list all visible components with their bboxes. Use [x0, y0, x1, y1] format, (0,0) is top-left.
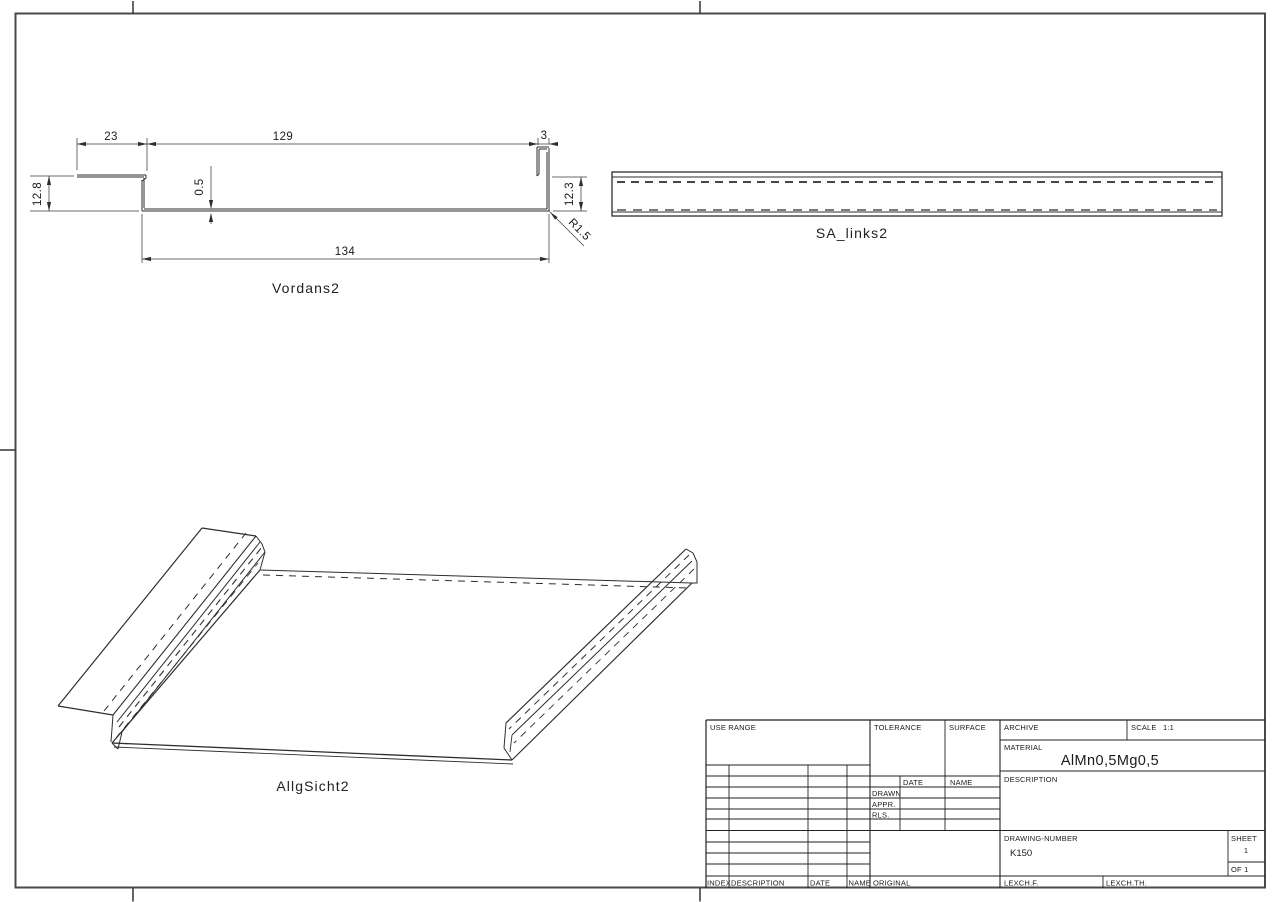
- tolerance-label: TOLERANCE: [874, 723, 922, 732]
- iso-view-label: AllgSicht2: [276, 778, 349, 794]
- front-view-label: Vordans2: [272, 280, 340, 296]
- material-value: AlMn0,5Mg0,5: [1061, 753, 1159, 769]
- side-view-geometry: [612, 172, 1222, 216]
- dim-lip-width: 3: [541, 130, 548, 142]
- dim-bend-radius: R1.5: [566, 216, 593, 243]
- name-header: NAME: [950, 778, 972, 787]
- lexch-f-label: LEXCH.F.: [1004, 879, 1039, 888]
- dim-right-height: 12.3: [564, 182, 576, 206]
- date-col-label: DATE: [810, 879, 830, 888]
- appr-label: APPR.: [872, 800, 896, 809]
- front-view-geometry: [77, 147, 550, 211]
- date-header: DATE: [903, 778, 923, 787]
- surface-label: SURFACE: [949, 723, 986, 732]
- description-col-label: DESCRIPTION: [731, 879, 784, 888]
- drawn-label: DRAWN: [872, 789, 901, 798]
- archive-label: ARCHIVE: [1004, 723, 1039, 732]
- sheet-value: 1: [1244, 846, 1248, 855]
- side-view-label: SA_links2: [816, 225, 888, 241]
- dim-top-span: 129: [273, 131, 293, 143]
- dim-flange-width: 23: [104, 131, 118, 143]
- scale-label: SCALE: [1131, 723, 1157, 732]
- drawing-number-value: K150: [1010, 848, 1032, 859]
- dim-bottom-span: 134: [335, 246, 356, 258]
- original-label: ORIGINAL: [873, 879, 910, 888]
- front-view-dimensions: 23 129 3 134 12.8 12.3 0.5 R1.5: [30, 130, 593, 263]
- scale-value: 1:1: [1163, 723, 1174, 732]
- drawing-canvas: 23 129 3 134 12.8 12.3 0.5 R1.5 Vordans2…: [0, 0, 1280, 902]
- index-col-label: INDEX: [707, 879, 731, 888]
- of-value: OF 1: [1231, 865, 1248, 874]
- dim-left-height: 12.8: [32, 182, 44, 206]
- use-range-label: USE RANGE: [710, 723, 756, 732]
- lexch-th-label: LEXCH.TH.: [1106, 879, 1147, 888]
- drawing-number-label: DRAWING-NUMBER: [1004, 834, 1078, 843]
- rls-label: RLS.: [872, 811, 889, 820]
- title-block: USE RANGE TOLERANCE SURFACE ARCHIVE SCAL…: [706, 720, 1265, 888]
- name-col-label: NAME: [849, 879, 871, 888]
- material-label: MATERIAL: [1004, 743, 1043, 752]
- iso-view-geometry: [58, 528, 697, 764]
- dim-thickness: 0.5: [194, 178, 206, 195]
- sheet-label: SHEET: [1231, 834, 1257, 843]
- description-label: DESCRIPTION: [1004, 775, 1057, 784]
- drawing-sheet: 23 129 3 134 12.8 12.3 0.5 R1.5 Vordans2…: [0, 0, 1280, 902]
